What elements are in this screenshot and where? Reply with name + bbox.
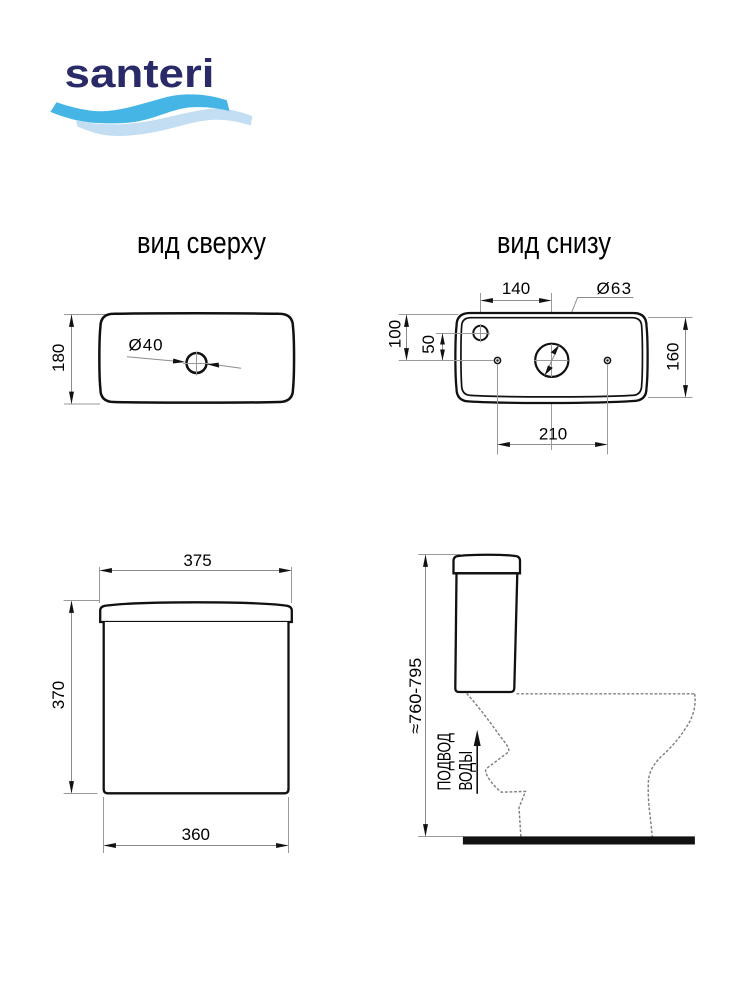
svg-text:santeri: santeri — [65, 52, 215, 96]
svg-text:Ø40: Ø40 — [129, 336, 164, 355]
svg-text:Ø63: Ø63 — [597, 279, 633, 298]
svg-text:100: 100 — [386, 320, 405, 348]
svg-text:160: 160 — [664, 343, 683, 371]
svg-text:375: 375 — [183, 551, 211, 570]
svg-text:360: 360 — [182, 825, 210, 844]
svg-text:вид снизу: вид снизу — [497, 225, 611, 260]
svg-text:210: 210 — [539, 425, 567, 444]
svg-text:370: 370 — [49, 681, 68, 709]
svg-text:вид сверху: вид сверху — [137, 225, 266, 260]
svg-text:180: 180 — [49, 344, 68, 372]
svg-text:140: 140 — [502, 279, 530, 298]
svg-text:ПОДВОД: ПОДВОД — [435, 733, 455, 791]
svg-text:≈760-795: ≈760-795 — [406, 658, 425, 734]
svg-text:50: 50 — [419, 335, 438, 354]
svg-text:ВОДЫ: ВОДЫ — [456, 751, 476, 791]
